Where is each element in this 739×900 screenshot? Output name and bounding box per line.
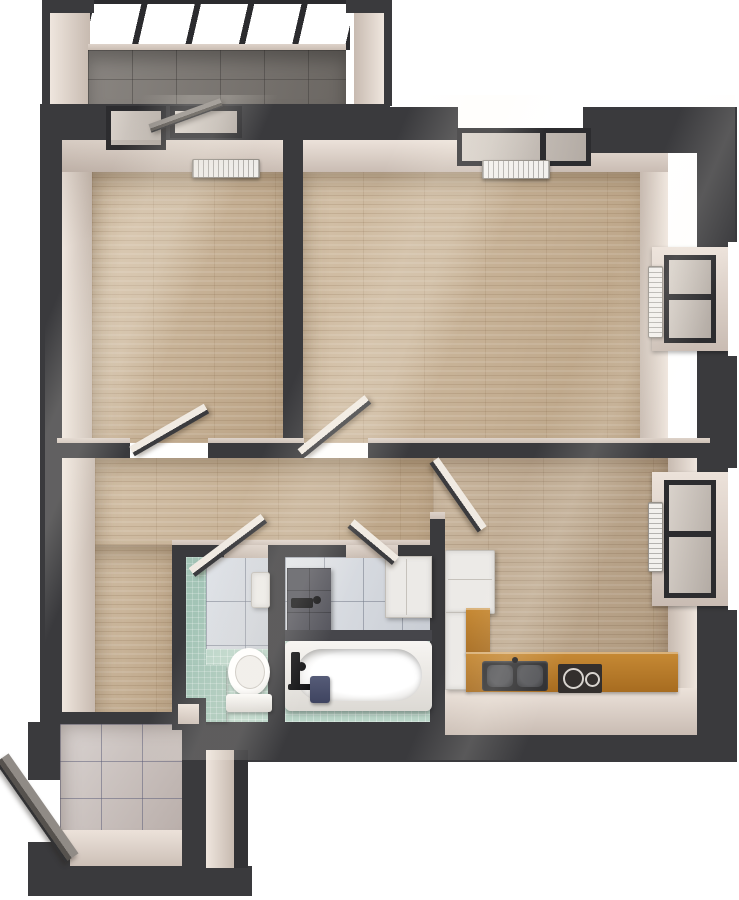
bath-block-wall-bottom	[172, 722, 445, 738]
living-bay-window	[664, 255, 716, 343]
cooktop-burner-large	[563, 668, 584, 689]
balcony-wall-face-right	[354, 13, 384, 106]
living-top-window-rail	[540, 133, 546, 161]
washer-lid-line	[406, 559, 407, 615]
entry-threshold	[62, 712, 172, 724]
divider-wall-1	[57, 443, 130, 458]
wc-boiler	[251, 572, 270, 608]
hall-floor-upper	[95, 458, 433, 545]
entry-floor	[60, 724, 182, 830]
kitchen-side-radiator	[648, 502, 663, 572]
kitchen-bay-outside	[728, 468, 739, 610]
outer-wall-left	[40, 104, 62, 762]
fridge	[445, 550, 495, 614]
living-bay-window-rail	[669, 294, 711, 300]
fridge-door-line	[448, 579, 492, 580]
cooktop-burner-small	[585, 672, 600, 687]
toilet-seat	[235, 655, 265, 689]
kitchen-counter-vertical	[466, 608, 490, 654]
kitchen-side-cabinet	[445, 612, 468, 690]
center-wall-vertical	[283, 104, 303, 458]
washing-machine	[385, 556, 432, 618]
balcony-frame-right	[384, 4, 392, 106]
shower-mixer	[291, 598, 313, 608]
entry-right-outer-wall	[234, 750, 248, 868]
toilet	[226, 648, 272, 716]
bedroom-wall-face-left	[62, 172, 92, 443]
outer-wall-top-right-block	[390, 107, 458, 140]
hall-floor-corridor	[95, 545, 172, 712]
living-top-radiator	[482, 160, 550, 179]
sink-faucet	[512, 657, 518, 663]
bathtub	[285, 641, 432, 711]
balcony-floor	[88, 50, 346, 106]
balcony-wall-face-left	[50, 13, 90, 106]
kitchen-sink	[482, 661, 548, 691]
shower-knob	[313, 596, 321, 604]
kitchen-bay-window-rail	[669, 531, 711, 537]
sink-bowl-left	[487, 665, 513, 687]
balcony-frame-left	[42, 4, 50, 106]
bedroom-floor	[92, 172, 283, 443]
living-floor	[302, 172, 640, 443]
balcony-corner-top-left	[42, 0, 94, 13]
hall-wall-face-left	[62, 458, 95, 712]
living-side-radiator	[648, 266, 663, 338]
tub-faucet-knob	[297, 662, 306, 671]
entry-wall-left	[28, 722, 60, 780]
kitchen-bay-window	[664, 480, 716, 598]
bedroom-radiator	[192, 159, 260, 178]
bath-block-wall-right	[430, 519, 445, 735]
divider-wall-3	[368, 443, 710, 458]
wall-niche	[178, 704, 199, 724]
bath-stool	[310, 676, 330, 703]
living-bay-outside	[728, 242, 739, 356]
entry-wall-bottom	[28, 866, 252, 896]
balcony-glazing	[88, 0, 350, 50]
cooktop	[558, 664, 602, 693]
divider-wall-2	[208, 443, 304, 458]
outer-wall-top-right-mass	[583, 107, 737, 153]
sink-bowl-right	[517, 665, 543, 687]
entry-wall-right	[182, 738, 206, 872]
tub-ledge	[285, 630, 432, 641]
floor-plan-render	[0, 0, 739, 900]
kitchen-wall-face-bottom	[445, 688, 697, 735]
entry-right-wall-face	[206, 750, 234, 868]
toilet-tank	[226, 694, 272, 712]
